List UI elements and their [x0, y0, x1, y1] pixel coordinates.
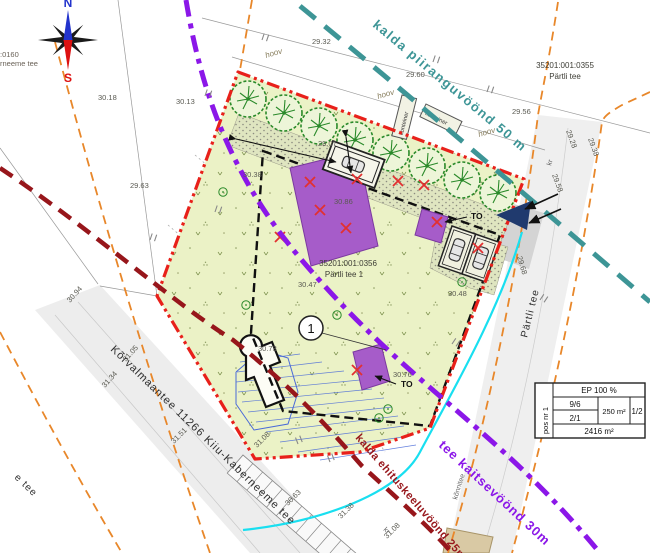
elevation-label: 29.63 — [130, 181, 149, 190]
table-plot-area: 2416 m² — [584, 427, 614, 436]
elevation-label: 30.86 — [334, 197, 353, 206]
elevation-label: 30.48 — [448, 289, 467, 298]
access-label: TO — [401, 379, 413, 389]
compass-north-label: N — [64, 0, 73, 10]
info-table: pos nr 1 EP 100 % 9/6 2/1 250 m² 1/2 241… — [535, 383, 645, 438]
elevation-label: 30.47 — [298, 280, 317, 289]
corner-road-truncated: rneeme tee — [0, 59, 38, 68]
table-build-rate: EP 100 % — [581, 386, 616, 395]
site-plan-svg: konteiner konteiner TO T — [0, 0, 650, 553]
pos-number: 1 — [307, 321, 314, 336]
main-parcel-address: Pärtli tee 1 — [325, 270, 364, 279]
corner-cadastral-truncated: :0160 — [0, 50, 19, 59]
elevation-label: 30.73 — [258, 344, 277, 353]
compass-south-label: S — [64, 71, 72, 85]
elevation-label: 30.76 — [393, 370, 412, 379]
tree-icon — [230, 81, 266, 117]
table-storeys-main: 9/6 — [569, 400, 581, 409]
elevation-label: 29.32 — [312, 37, 331, 46]
site-plan-canvas: konteiner konteiner TO T — [0, 0, 650, 553]
elevation-label: 30.18 — [98, 93, 117, 102]
table-building-area: 250 m² — [602, 407, 626, 416]
tree-icon — [266, 95, 302, 131]
elevation-label: 30.38 — [243, 170, 262, 179]
access-label: TO — [471, 211, 483, 221]
table-ratio: 1/2 — [631, 407, 643, 416]
neighbor-cadastral: 35201:001:0355 — [536, 61, 594, 70]
elevation-label: 30.13 — [176, 97, 195, 106]
tree-icon — [409, 148, 445, 184]
table-storeys-sec: 2/1 — [569, 414, 581, 423]
neighbor-address: Pärtli tee — [549, 72, 581, 81]
elevation-label: 29.56 — [512, 107, 531, 116]
elevation-label: 29.07 — [318, 139, 337, 148]
table-pos-label: pos nr 1 — [541, 407, 550, 434]
main-parcel-cadastral: 35201:001:0356 — [319, 259, 377, 268]
tree-icon — [444, 162, 480, 198]
